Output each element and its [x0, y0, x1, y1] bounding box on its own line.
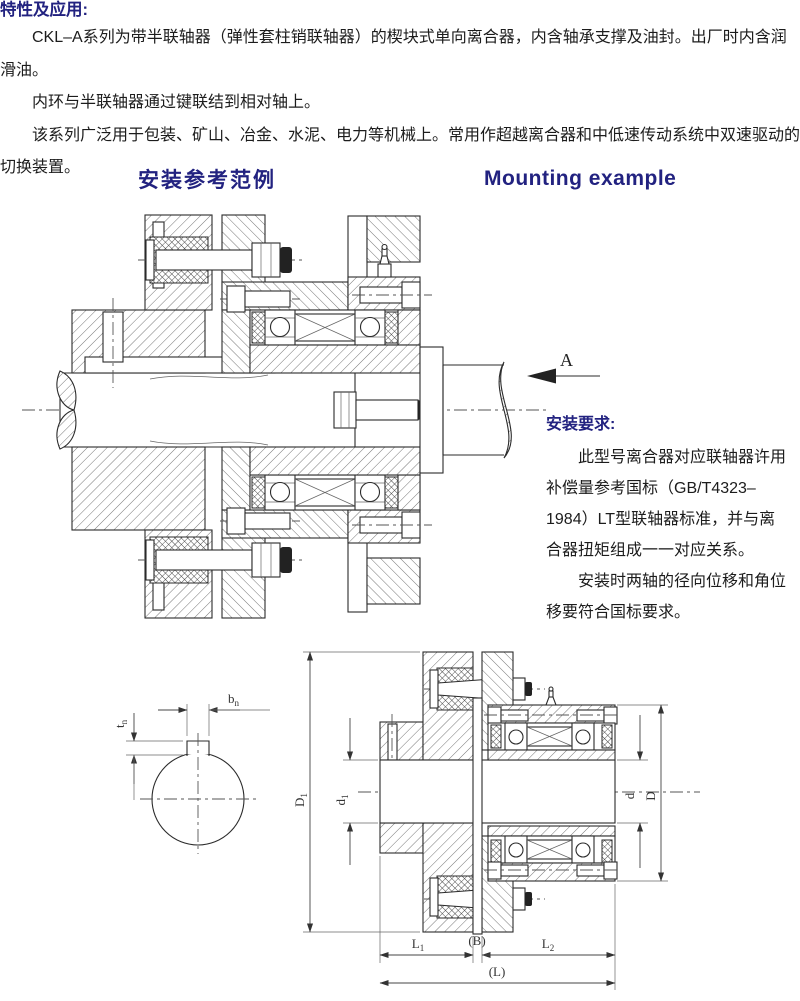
view-a-label: A	[560, 350, 573, 370]
lower-dimension-drawing: bn tn	[90, 630, 790, 1001]
bearing-row-top	[250, 310, 420, 345]
catalog-page: 特性及应用: CKL–A系列为带半联轴器（弹性套柱销联轴器）的楔块式单向离合器，…	[0, 0, 800, 1001]
flange-plate-small	[473, 698, 482, 934]
ball-bearing	[271, 483, 290, 502]
view-a-arrow: A	[527, 350, 600, 384]
center-bolt	[334, 392, 434, 428]
bearing-row-bottom	[250, 475, 420, 510]
ball-bearing	[361, 318, 380, 337]
dimension-B: (B)	[448, 933, 507, 963]
svg-text:d: d	[622, 792, 637, 799]
intro-paragraph-2: 内环与半联轴器通过键联结到相对轴上。	[0, 87, 800, 120]
svg-text:D: D	[643, 791, 658, 800]
requirements-paragraph-2: 安装时两轴的径向位移和角位移要符合国标要求。	[546, 566, 790, 628]
dimension-L: (L)	[380, 964, 615, 983]
intro-paragraph-1: CKL–A系列为带半联轴器（弹性套柱销联轴器）的楔块式单向离合器，内含轴承支撑及…	[0, 22, 800, 87]
dimension-d1: d1	[333, 718, 378, 865]
svg-text:(B): (B)	[468, 933, 485, 948]
intro-section: 特性及应用: CKL–A系列为带半联轴器（弹性套柱销联轴器）的楔块式单向离合器，…	[0, 0, 800, 185]
keyway-section: bn tn	[112, 691, 270, 854]
install-requirements: 安装要求: 此型号离合器对应联轴器许用补偿量参考国标（GB/T4323–1984…	[546, 414, 790, 628]
section-title-features: 特性及应用:	[0, 0, 800, 22]
svg-text:L2: L2	[542, 936, 554, 953]
svg-text:(L): (L)	[489, 964, 506, 979]
left-shaft	[57, 371, 355, 449]
heading-mounting-example-en: Mounting example	[484, 167, 676, 191]
inner-ring-top	[250, 345, 420, 373]
ball-bearing	[361, 483, 380, 502]
dim-label-t: tn	[112, 719, 129, 728]
arrow-left-icon	[527, 369, 556, 384]
dim-label-b: bn	[228, 691, 240, 708]
grease-fitting-small-icon	[546, 687, 556, 705]
requirements-paragraph-1: 此型号离合器对应联轴器许用补偿量参考国标（GB/T4323–1984）LT型联轴…	[546, 442, 790, 566]
intro-paragraph-3: 该系列广泛用于包装、矿山、冶金、水泥、电力等机械上。常用作超越离合器和中低速传动…	[0, 120, 800, 185]
requirements-title: 安装要求:	[546, 414, 790, 436]
inner-ring-bottom	[250, 447, 420, 475]
ball-bearing	[271, 318, 290, 337]
svg-text:D1: D1	[292, 793, 309, 807]
svg-text:d1: d1	[333, 795, 350, 806]
heading-install-example-zh: 安装参考范例	[138, 164, 276, 194]
svg-text:L1: L1	[412, 936, 424, 953]
